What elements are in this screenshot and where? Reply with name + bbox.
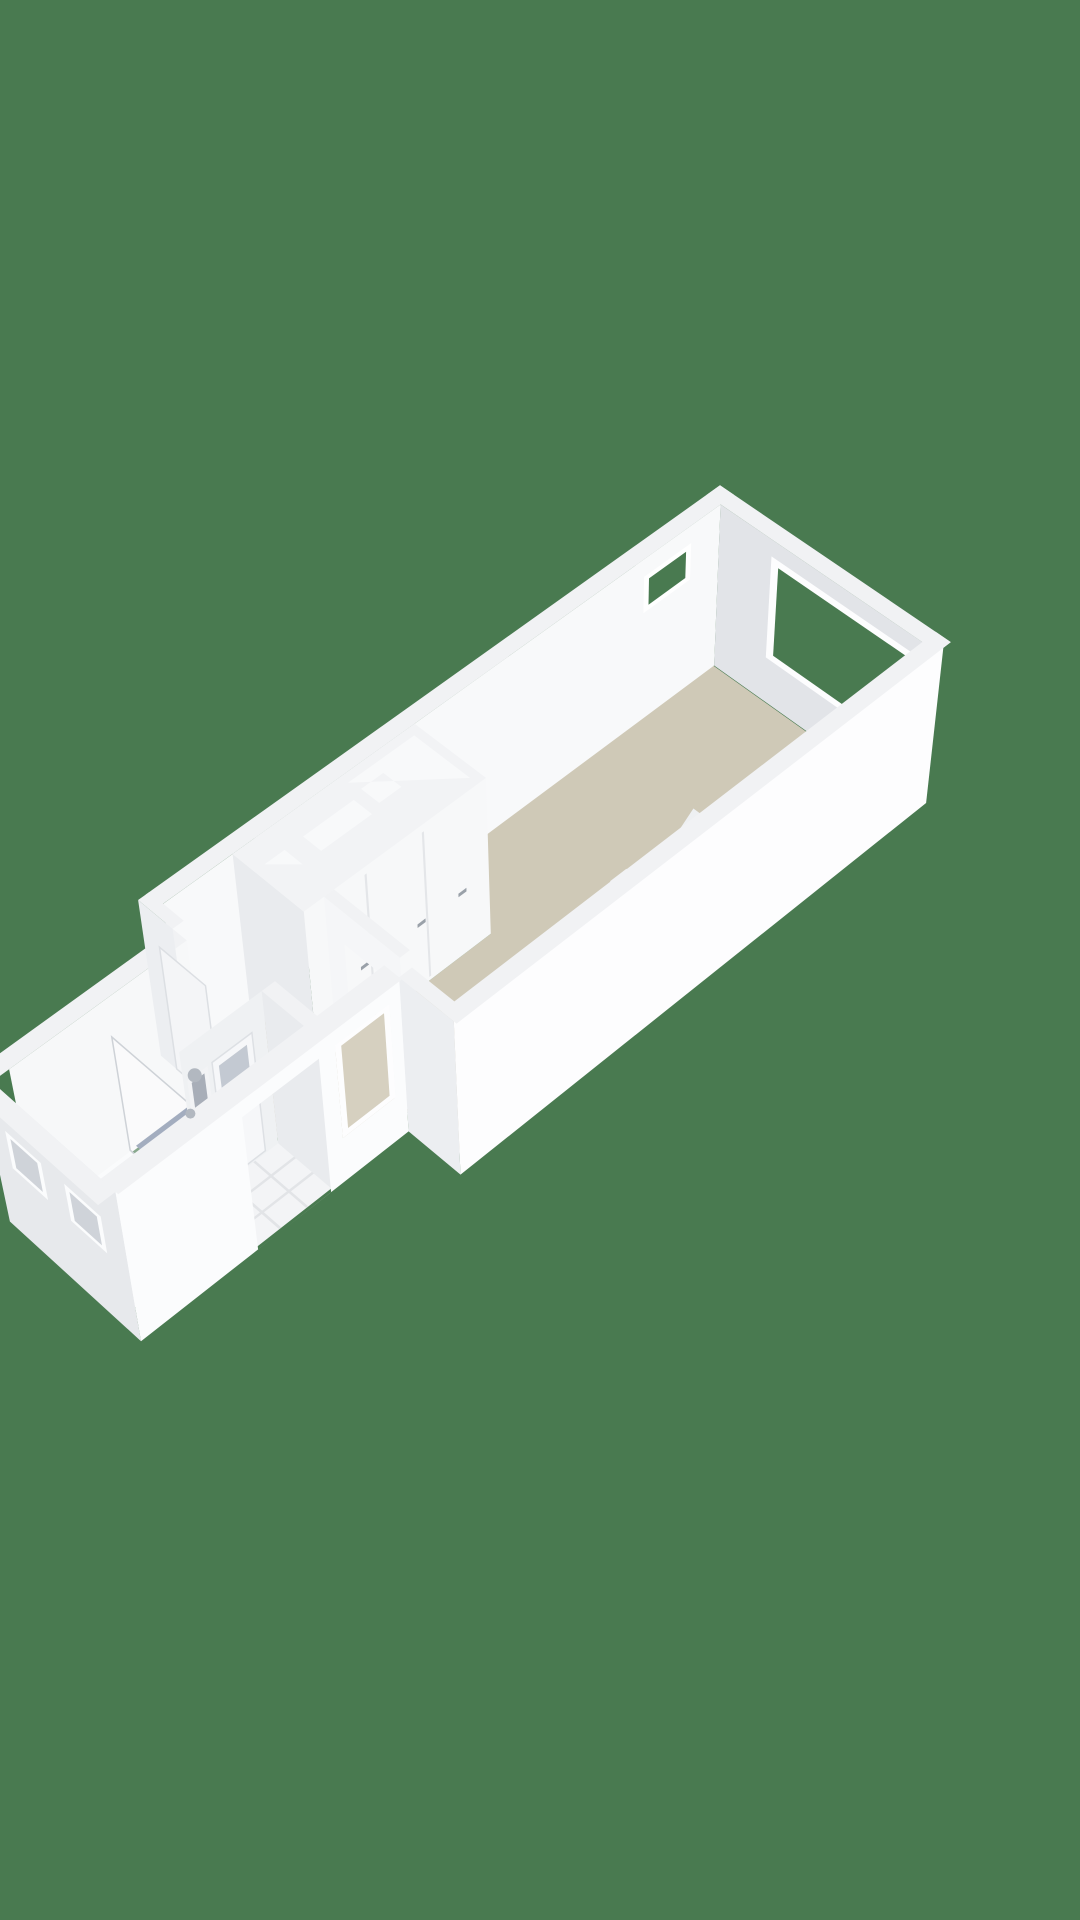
- floorplan-scene: [0, 0, 1080, 1920]
- shower-fixture-base: [185, 1109, 195, 1119]
- shower-fixture-head: [188, 1068, 202, 1082]
- floorplan-3d-render: [0, 0, 1080, 1920]
